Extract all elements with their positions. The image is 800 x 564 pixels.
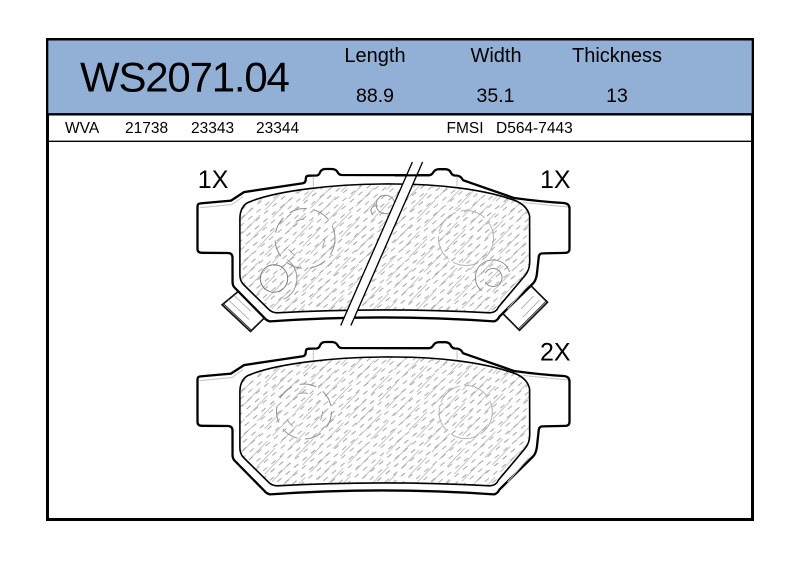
svg-text:WVA: WVA [65,120,100,137]
svg-text:Thickness: Thickness [572,45,662,67]
svg-text:88.9: 88.9 [356,85,394,107]
svg-text:WS2071.04: WS2071.04 [80,54,290,101]
svg-text:21738: 21738 [125,120,168,137]
svg-text:Width: Width [470,45,521,67]
svg-text:D564-7443: D564-7443 [496,120,573,137]
svg-text:1X: 1X [540,166,571,194]
svg-text:2X: 2X [540,339,571,367]
svg-text:23343: 23343 [191,120,234,137]
svg-text:Length: Length [344,45,405,67]
svg-text:1X: 1X [198,166,229,194]
svg-text:FMSI: FMSI [447,120,484,137]
svg-text:35.1: 35.1 [477,85,515,107]
svg-text:23344: 23344 [256,120,299,137]
svg-text:13: 13 [606,85,628,107]
